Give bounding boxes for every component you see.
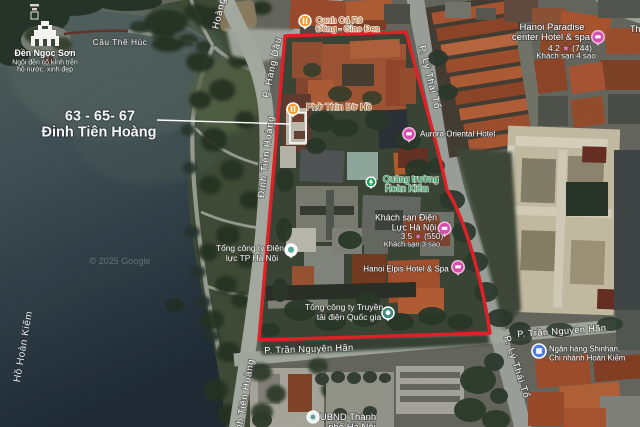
svg-text:Khách sạn 4 sao: Khách sạn 4 sao [536, 52, 596, 61]
svg-text:Quảng trường: Quảng trường [383, 174, 439, 184]
svg-text:Đền Ngọc Sơn: Đền Ngọc Sơn [15, 48, 76, 58]
svg-text:Đồng - Giao Đen: Đồng - Giao Đen [316, 24, 380, 34]
svg-text:Khách sạn 3 sao: Khách sạn 3 sao [384, 240, 441, 249]
svg-text:Tổng công ty Truyền: Tổng công ty Truyền [305, 302, 384, 312]
svg-text:Hoàn Kiếm: Hoàn Kiếm [385, 184, 429, 194]
svg-text:tải điện Quốc gia: tải điện Quốc gia [317, 312, 382, 322]
svg-text:Ngân hàng Shinhan,: Ngân hàng Shinhan, [549, 345, 620, 354]
svg-text:Chi nhánh Hoàn Kiếm: Chi nhánh Hoàn Kiếm [549, 354, 625, 363]
svg-text:Lực Hà Nội: Lực Hà Nội [392, 223, 437, 233]
svg-text:phố Hà Nội: phố Hà Nội [328, 422, 376, 427]
svg-text:63 - 65- 67: 63 - 65- 67 [65, 109, 135, 125]
svg-text:© 2025 Google: © 2025 Google [90, 256, 151, 266]
svg-text:Aurora Oriental Hotel: Aurora Oriental Hotel [420, 130, 495, 139]
svg-text:center Hotel & spa: center Hotel & spa [512, 32, 591, 43]
svg-text:Hanoi Elpis Hotel & Spa: Hanoi Elpis Hotel & Spa [363, 265, 449, 274]
svg-text:lực TP Hà Nội: lực TP Hà Nội [226, 253, 278, 263]
svg-text:Ngôi đền cổ kính trên: Ngôi đền cổ kính trên [12, 58, 78, 67]
svg-text:Cầu Thê Húc: Cầu Thê Húc [93, 37, 148, 47]
svg-text:Khách sạn Điện: Khách sạn Điện [375, 213, 437, 223]
svg-text:Th: Th [630, 24, 640, 34]
svg-text:Tổng công ty Điện: Tổng công ty Điện [216, 243, 284, 253]
svg-text:Đinh Tiên Hoàng: Đinh Tiên Hoàng [42, 125, 157, 141]
svg-text:hồ nước, xinh đẹp: hồ nước, xinh đẹp [17, 65, 73, 74]
svg-text:Phở Thìn Bờ Hồ: Phở Thìn Bờ Hồ [306, 102, 372, 112]
